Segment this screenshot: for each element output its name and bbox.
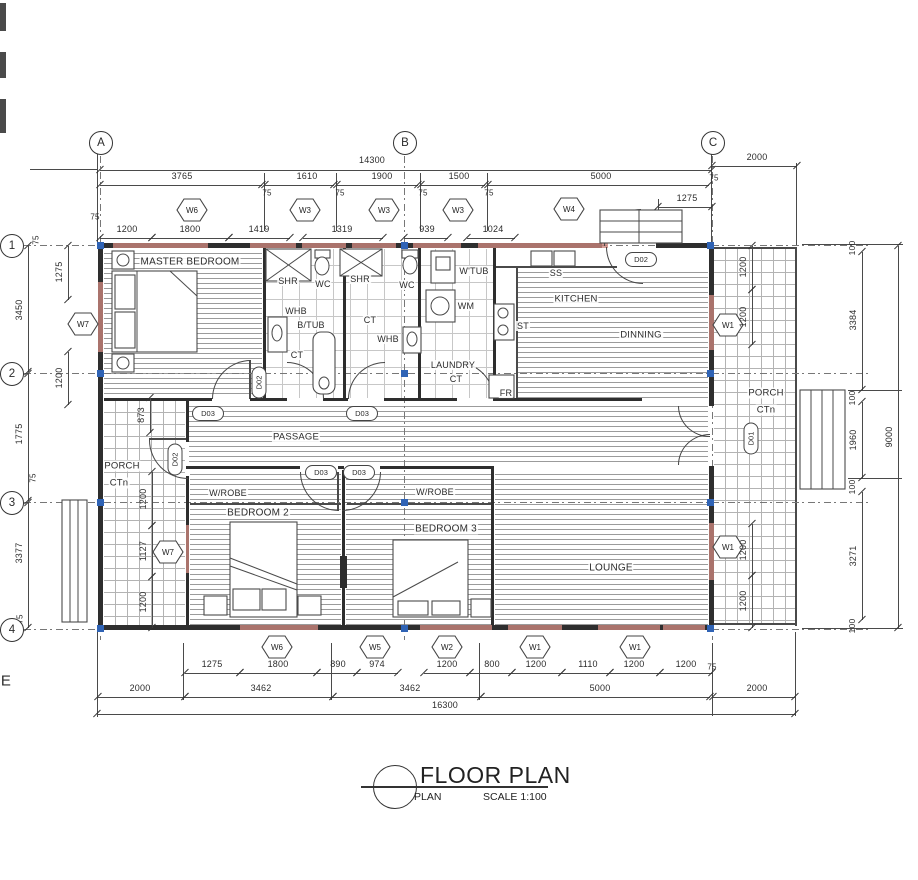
dim-line	[152, 238, 229, 239]
window-tag-label: W3	[378, 206, 391, 215]
dimension-value: 1960	[848, 430, 858, 451]
fixture-circle	[498, 308, 508, 318]
dim-line	[152, 526, 153, 577]
dimension-value: 800	[484, 659, 500, 669]
dim-line	[752, 576, 753, 628]
dim-line	[862, 252, 863, 390]
dimension-value: 14300	[359, 155, 385, 165]
plan-label: PORCH	[747, 388, 784, 399]
plan-label: LAUNDRY	[430, 360, 476, 370]
dim-line	[97, 714, 795, 715]
dim-line	[185, 673, 240, 674]
window-tag-label: W2	[441, 643, 454, 652]
fixture-ellipse	[272, 325, 282, 341]
plan-label: CTn	[109, 478, 130, 489]
dimension-value: 1200	[526, 659, 547, 669]
drawing-scale: SCALE 1:100	[483, 791, 547, 803]
dimension-value: 1500	[449, 171, 470, 181]
plan-label: E	[1, 673, 11, 690]
door-tag: D02	[252, 366, 267, 398]
dimension-value: 1200	[738, 257, 748, 278]
dimension-value: 3462	[400, 683, 421, 693]
dimension-value: 2000	[747, 152, 768, 162]
door-tag: D03	[343, 465, 375, 480]
fixture-rect	[115, 312, 135, 348]
dimension-value: 974	[369, 659, 385, 669]
dimension-value: 1200	[54, 368, 64, 389]
fixture-circle	[431, 297, 449, 315]
door-tag: D01	[744, 422, 759, 454]
door-tag: D03	[346, 406, 378, 421]
window-tag-label: W1	[722, 321, 735, 330]
grid-bubble-4: 4	[0, 618, 24, 642]
dimension-value: 1127	[138, 541, 148, 561]
dimension-value: 2000	[130, 683, 151, 693]
plan-label: W/ROBE	[415, 487, 455, 497]
dimension-value: 1200	[437, 659, 458, 669]
dim-line	[752, 290, 753, 345]
dim-line	[862, 402, 863, 478]
dim-line	[752, 246, 753, 290]
dimension-value: 873	[136, 407, 146, 423]
fixture-ellipse	[407, 332, 417, 346]
dim-line	[28, 503, 29, 628]
fixture-rect	[262, 589, 286, 610]
dimension-value: 1800	[268, 659, 289, 669]
dim-line	[152, 577, 153, 628]
fixture-rect	[600, 210, 682, 243]
dimension-value: 3377	[14, 543, 24, 564]
dim-line	[862, 492, 863, 620]
dimension-value: 5000	[591, 171, 612, 181]
fixture-ellipse	[403, 256, 417, 274]
dim-line	[240, 673, 317, 674]
plan-label: 75	[32, 235, 41, 244]
plan-label: 75	[29, 473, 38, 482]
dim-line	[470, 673, 512, 674]
plan-label: WC	[398, 280, 415, 290]
dimension-value: 1110	[578, 659, 598, 669]
dim-line	[467, 238, 515, 239]
plan-label: 75	[90, 213, 99, 222]
dimension-value: 1200	[117, 224, 138, 234]
window-tag-label: W4	[563, 205, 576, 214]
dimension-value: 1200	[624, 659, 645, 669]
window-tag-label: W3	[452, 206, 465, 215]
dimension-value: 1419	[249, 224, 270, 234]
plan-label: SHR	[277, 276, 299, 286]
fixture-ellipse	[319, 377, 329, 389]
dim-line	[229, 238, 290, 239]
dimension-value: 1610	[297, 171, 318, 181]
grid-bubble-B: B	[393, 131, 417, 155]
plan-label: W/ROBE	[208, 488, 248, 498]
dimension-value: 2000	[747, 683, 768, 693]
fixture-rect	[432, 601, 460, 615]
grid-bubble-C: C	[701, 131, 725, 155]
fixture-rect	[554, 251, 575, 266]
plan-label: ST	[516, 321, 530, 331]
plan-label: FR	[499, 388, 513, 398]
plan-label: SHR	[349, 274, 371, 284]
plan-label: BEDROOM 3	[414, 524, 478, 535]
dim-line	[658, 207, 712, 208]
dim-line	[185, 697, 333, 698]
drawing-title: FLOOR PLAN	[420, 762, 571, 789]
fixture-ellipse	[315, 257, 329, 275]
plan-label: WHB	[284, 306, 308, 316]
plan-label: CT	[290, 350, 304, 360]
dim-line	[712, 166, 797, 167]
dim-line	[68, 352, 69, 405]
window-tag-label: W1	[629, 643, 642, 652]
dimension-value: 9000	[884, 427, 894, 448]
dim-line	[98, 697, 185, 698]
fixture-circle	[498, 325, 508, 335]
dimension-value: 3271	[848, 546, 858, 567]
plan-label: W'TUB	[458, 266, 489, 276]
plan-label: CTn	[756, 405, 777, 416]
fixture-rect	[115, 275, 135, 309]
window-tag-label: W1	[529, 643, 542, 652]
plan-label: 75	[262, 189, 271, 198]
door-tag: D03	[305, 465, 337, 480]
dimension-value: 1319	[332, 224, 353, 234]
grid-bubble-A: A	[89, 131, 113, 155]
plan-label: BEDROOM 2	[226, 508, 290, 519]
door-tag: D03	[192, 406, 224, 421]
window-tag-label: W7	[162, 548, 175, 557]
plan-label: 100	[847, 480, 857, 495]
fixture-rect	[436, 257, 450, 270]
fixture-rect	[233, 589, 260, 610]
dimension-value: 1024	[483, 224, 504, 234]
dim-line	[150, 398, 151, 433]
dim-line	[100, 185, 262, 186]
door-tag: D02	[625, 252, 657, 267]
dimension-value: 1775	[14, 424, 24, 445]
plan-label: WHB	[376, 334, 400, 344]
fixture-rect	[62, 500, 87, 622]
plan-label: DINNING	[619, 330, 663, 341]
plan-label: KITCHEN	[553, 294, 598, 305]
dim-line	[152, 472, 153, 526]
plan-label: 75	[707, 663, 716, 672]
dimension-value: 1275	[677, 193, 698, 203]
dim-line	[337, 185, 418, 186]
plan-label: 100	[847, 391, 857, 406]
dimension-value: 1200	[138, 489, 148, 510]
dim-line	[317, 673, 357, 674]
plan-label: SS	[549, 268, 563, 278]
dim-line	[421, 185, 485, 186]
dimension-value: 1200	[738, 307, 748, 328]
dimension-value: 3765	[172, 171, 193, 181]
grid-bubble-3: 3	[0, 491, 24, 515]
window-tag-label: W5	[369, 643, 382, 652]
window-tag-label: W7	[77, 320, 90, 329]
dim-line	[357, 673, 398, 674]
dim-line	[660, 673, 712, 674]
plan-label: MASTER BEDROOM	[140, 257, 241, 268]
window-tag-label: W6	[186, 206, 199, 215]
plan-label: CT	[363, 315, 377, 325]
dim-line	[752, 524, 753, 576]
plan-label: WM	[457, 301, 475, 311]
fixture-circle	[117, 254, 129, 266]
plan-label: 75	[484, 189, 493, 198]
dim-line	[100, 238, 152, 239]
dimension-value: 939	[419, 224, 435, 234]
dimension-value: 3450	[14, 300, 24, 321]
window-tag-label: W3	[299, 206, 312, 215]
dimension-value: 1275	[54, 262, 64, 283]
grid-bubble-2: 2	[0, 362, 24, 386]
dim-line	[898, 246, 899, 628]
fixture-rect	[471, 599, 491, 617]
dim-line	[265, 185, 334, 186]
dim-line	[28, 246, 29, 372]
dimension-value: 1800	[180, 224, 201, 234]
window-tag-label: W6	[271, 643, 284, 652]
door-tag: D02	[168, 443, 183, 475]
fixture-rect	[531, 251, 552, 266]
dim-line	[481, 697, 710, 698]
dim-line	[303, 238, 383, 239]
dimension-value: 1200	[738, 591, 748, 612]
dim-line	[610, 673, 660, 674]
dimension-value: 1200	[676, 659, 697, 669]
dimension-value: 890	[330, 659, 346, 669]
plan-label: 100	[847, 619, 857, 634]
dim-line	[68, 246, 69, 300]
grid-bubble-1: 1	[0, 234, 24, 258]
fixture-rect	[298, 596, 321, 615]
dim-line	[562, 673, 610, 674]
dim-line	[713, 697, 795, 698]
plan-label: 75	[418, 189, 427, 198]
dimension-value: 1200	[738, 540, 748, 561]
dimension-value: 3384	[848, 310, 858, 331]
dim-line	[512, 673, 562, 674]
dimension-value: 1900	[372, 171, 393, 181]
plan-label: PORCH	[103, 461, 140, 472]
fixture-rect	[398, 601, 428, 615]
dim-line	[488, 185, 709, 186]
dimension-value: 16300	[432, 700, 458, 710]
dim-line	[333, 697, 481, 698]
plan-label: LOUNGE	[588, 563, 633, 574]
plan-label: PASSAGE	[272, 432, 320, 443]
fixture-rect	[204, 596, 227, 615]
plan-label: B/TUB	[296, 320, 326, 330]
fixtures-layer: W6W3W3W3W4W7W7W1W1W6W5W2W1W1	[0, 0, 918, 880]
fixture-circle	[117, 357, 129, 369]
drawing-subtitle: PLAN	[414, 791, 441, 803]
window-tag-label: W1	[722, 543, 735, 552]
plan-label: 75	[335, 189, 344, 198]
dim-line	[404, 238, 448, 239]
dim-line	[424, 673, 470, 674]
plan-label: WC	[314, 279, 331, 289]
plan-label: 75	[709, 174, 718, 183]
dimension-value: 1200	[138, 592, 148, 613]
plan-label: 100	[847, 241, 857, 256]
dimension-value: 5000	[590, 683, 611, 693]
dimension-value: 1275	[202, 659, 223, 669]
dimension-value: 3462	[251, 683, 272, 693]
plan-label: CT	[449, 374, 463, 384]
floor-plan-canvas: W6W3W3W3W4W7W7W1W1W6W5W2W1W1 FLOOR PLAN …	[0, 0, 918, 880]
